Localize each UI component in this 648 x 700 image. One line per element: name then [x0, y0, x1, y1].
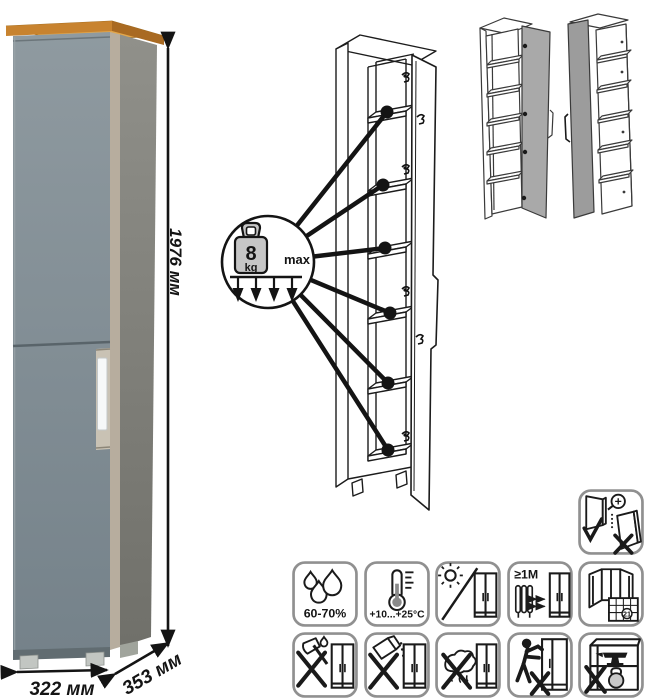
- radiator-icon: [516, 586, 533, 618]
- no-overload-icon: [578, 632, 644, 698]
- wardrobe-glyph: [475, 573, 497, 616]
- temperature-label: +10...+25°C: [369, 610, 425, 621]
- load-unit: kg: [245, 262, 258, 274]
- height-label: 1976 мм: [166, 228, 185, 296]
- wardrobe-glyph: [404, 644, 426, 687]
- door-adjustment-icon: [578, 489, 644, 555]
- no-sharp-impact-icon: [292, 632, 358, 698]
- no-direct-sunlight-icon: [435, 561, 501, 627]
- product-sheet: 1976 мм 322 мм 353 мм: [0, 0, 648, 700]
- depth-label: 353 мм: [119, 649, 186, 700]
- shelves: [368, 105, 414, 461]
- calendar-day: 21: [623, 609, 631, 618]
- shelf-pointer-dots: [377, 106, 397, 457]
- wardrobe-glyph: [332, 644, 354, 687]
- wardrobe-glyph: [477, 644, 497, 687]
- max-load-callout: 8 kg max: [222, 216, 314, 308]
- cabinet-body: [13, 32, 157, 669]
- wardrobe-glyph: [550, 573, 570, 616]
- variant-door-right: [480, 18, 553, 219]
- no-dragging-icon: [507, 632, 573, 698]
- foot: [20, 655, 38, 669]
- variant-door-panel: [522, 26, 550, 218]
- humidity-label: 60-70%: [304, 607, 347, 621]
- width-dimension: 322 мм: [17, 670, 107, 700]
- temperature-icon: +10...+25°C: [364, 561, 430, 627]
- variant-door-panel: [568, 20, 594, 218]
- foot: [86, 652, 104, 666]
- calendar-icon: 21: [609, 598, 638, 621]
- no-abrasive-cleaners-icon: [364, 632, 430, 698]
- cabinet-render: 1976 мм 322 мм 353 мм: [0, 0, 210, 700]
- humidity-icon: 60-70%: [292, 561, 358, 627]
- variant-diagrams: [470, 2, 648, 242]
- ventilation-icon: 21: [578, 561, 644, 627]
- distance-label: ≥1М: [514, 568, 538, 582]
- height-dimension: 1976 мм: [166, 48, 185, 646]
- variant-door-left: [565, 14, 633, 218]
- load-qualifier: max: [284, 252, 311, 267]
- cabinet-side: [120, 35, 157, 648]
- cabinet-left-panel: [336, 43, 348, 487]
- shelf-load-diagram: 8 kg max: [200, 5, 500, 545]
- door-handle: [96, 348, 110, 450]
- cabinet-glyph: [542, 639, 567, 690]
- heat-source-distance-icon: ≥1М: [507, 561, 573, 627]
- no-wet-cleaning-icon: [435, 632, 501, 698]
- width-label: 322 мм: [29, 679, 94, 700]
